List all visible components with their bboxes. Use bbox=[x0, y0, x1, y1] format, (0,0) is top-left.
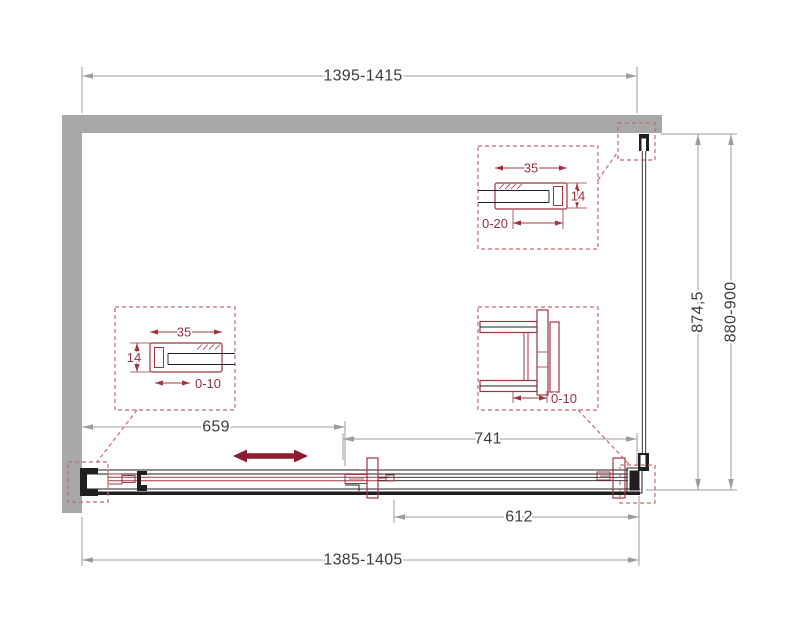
detail-depth-label: 14 bbox=[127, 350, 141, 365]
dim-right-heights: 874,5 880-900 bbox=[646, 134, 740, 490]
corner-connector-right bbox=[597, 453, 649, 498]
technical-drawing-canvas: 1395-1415 874,5 880-900 bbox=[0, 0, 800, 639]
glass-panel-section bbox=[550, 322, 559, 392]
wall-left bbox=[62, 115, 82, 513]
walls bbox=[62, 115, 662, 513]
side-glass-panel bbox=[639, 134, 649, 468]
callout-leader bbox=[598, 153, 617, 180]
seal-profile bbox=[122, 476, 135, 483]
detail-top-wall-profile: 35 14 0-20 bbox=[478, 146, 598, 249]
dim-fixed-width: 741 bbox=[343, 431, 637, 466]
corner-post-core bbox=[630, 471, 640, 491]
detail-left-wall-profile: 35 14 0-10 bbox=[115, 307, 235, 410]
connector-end bbox=[386, 475, 394, 481]
hatch bbox=[197, 345, 220, 350]
detail-adjust-label: 0-10 bbox=[195, 376, 221, 391]
slide-direction-arrow bbox=[233, 450, 308, 463]
dim-top-width-label: 1395-1415 bbox=[323, 68, 402, 85]
dim-height-range-label: 880-900 bbox=[723, 282, 740, 343]
wall-top bbox=[62, 115, 662, 133]
callout-leader bbox=[97, 410, 137, 462]
dim-door-width: 659 bbox=[82, 419, 345, 467]
dim-bottom-width-label: 1385-1405 bbox=[323, 552, 402, 569]
hatch bbox=[499, 184, 522, 189]
profile-slot bbox=[554, 187, 563, 206]
floor-bracket bbox=[345, 485, 359, 491]
callouts bbox=[68, 123, 655, 503]
shower-enclosure-plan-drawing: 1395-1415 874,5 880-900 bbox=[0, 0, 800, 639]
profile-slot bbox=[155, 348, 164, 368]
bottom-track bbox=[80, 453, 649, 498]
seal-profile bbox=[108, 474, 122, 484]
detail-adjust-label: 0-20 bbox=[482, 216, 508, 231]
dim-glass-bottom-width: 612 bbox=[394, 496, 639, 566]
dim-fixed-width-label: 741 bbox=[474, 431, 502, 448]
dim-door-width-label: 659 bbox=[202, 419, 230, 436]
detail-width-label: 35 bbox=[524, 161, 538, 176]
bracket-slot bbox=[87, 475, 98, 489]
track-bottom-profile bbox=[82, 492, 640, 496]
dim-bottom-width: 1385-1405 bbox=[82, 517, 639, 569]
callout-leader bbox=[578, 410, 629, 464]
dim-top-width: 1395-1415 bbox=[82, 67, 637, 113]
top-clamp-slot bbox=[642, 139, 647, 152]
detail-adjust-label: 0-10 bbox=[551, 391, 577, 406]
dim-glass-bottom-width-label: 612 bbox=[505, 509, 533, 526]
dim-panel-height-label: 874,5 bbox=[690, 291, 707, 333]
detail-corner-bracket: 0-10 bbox=[478, 307, 598, 410]
detail-depth-label: 14 bbox=[571, 189, 585, 204]
detail-width-label: 35 bbox=[177, 325, 191, 340]
bracket-post bbox=[537, 310, 548, 395]
